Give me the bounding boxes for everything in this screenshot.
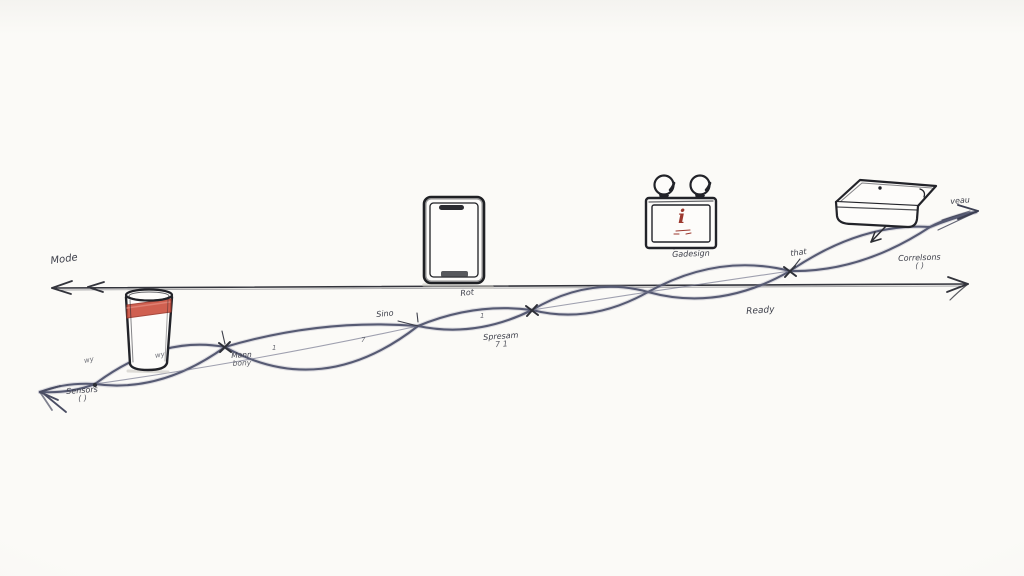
tick-wy-2: wy — [154, 350, 165, 360]
tick-1-a: 1 — [272, 344, 276, 352]
axis-right-arrowhead — [947, 277, 968, 300]
phone-speaker — [439, 205, 464, 210]
label-sino: Sino — [376, 309, 394, 319]
radio-red-i-glyph: i — [678, 206, 685, 228]
label-gadesign: Gadesign — [672, 250, 710, 260]
label-sensors: Sensors ( ) — [66, 386, 99, 405]
timeline-axis — [52, 277, 968, 300]
water-glass — [126, 290, 172, 373]
tick-1-b: 1 — [480, 312, 484, 320]
laptop — [836, 180, 936, 227]
label-knot-note-line2: bony — [231, 359, 252, 368]
label-spresam: Spresam 7 1 — [483, 332, 519, 351]
laptop-lid-dot — [878, 186, 881, 189]
sketch-canvas: Mode Sensors ( ) Mann bony Sino Rot Spre… — [0, 0, 1024, 576]
label-correlsons: Correlsons ( ) — [898, 254, 941, 272]
cable-strand-a — [40, 212, 976, 392]
label-correlsons-line2: ( ) — [898, 262, 941, 272]
label-ready: Ready — [746, 306, 775, 317]
braided-cables — [40, 205, 978, 412]
right-knob — [691, 176, 710, 195]
cable-strand-b — [40, 212, 976, 392]
cable-strand-b-shadow — [40, 212, 976, 392]
cable-strand-a-shadow — [40, 212, 976, 392]
label-knot-note: Mann bony — [231, 351, 252, 368]
label-rot: Rot — [460, 289, 474, 299]
smartphone — [424, 197, 492, 287]
sketch-drawing — [0, 0, 1024, 576]
left-knob — [655, 176, 674, 195]
label-veau: veau — [950, 196, 970, 206]
phone-home-bar — [441, 271, 468, 277]
tick-7: 7 — [361, 336, 365, 344]
